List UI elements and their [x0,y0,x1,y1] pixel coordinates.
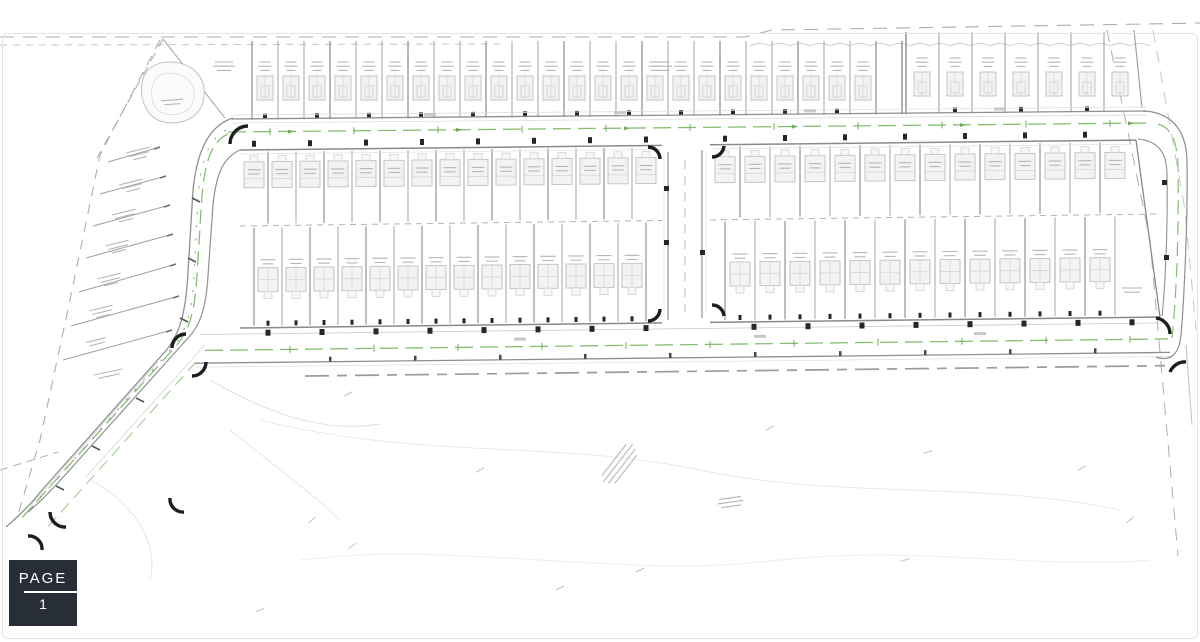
page-badge-divider [24,591,80,593]
corner-arcs [28,126,1186,550]
mid-right-block [710,132,1160,321]
mid-left-block [240,137,662,326]
utility-dashed-line [305,366,1165,376]
top-lot-row [252,30,1142,120]
lower-road [195,317,1170,367]
upper-road [228,107,1150,154]
site-plan-canvas [0,0,1200,642]
page-badge-label: PAGE [19,570,68,587]
right-road [1138,111,1192,425]
vertical-street [664,150,706,320]
pond-parcel [97,39,235,158]
page-badge[interactable]: PAGE 1 [9,560,77,626]
left-lots-strip [63,147,179,379]
annotation-smudges [599,62,1142,508]
open-space-marks [90,380,1150,612]
left-road [6,118,240,530]
page-badge-number: 1 [39,596,47,612]
